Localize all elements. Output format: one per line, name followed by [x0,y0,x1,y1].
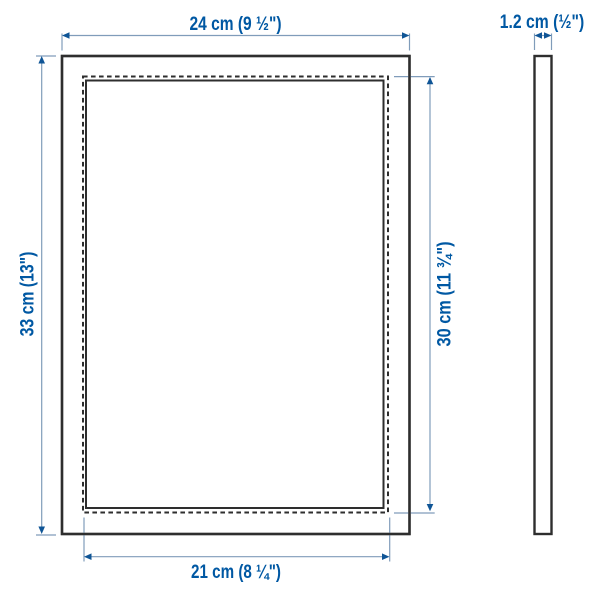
svg-text:30 cm (11 ¾"): 30 cm (11 ¾") [433,241,454,346]
svg-text:21 cm (8 ¼"): 21 cm (8 ¼") [191,560,281,582]
svg-text:33 cm (13"): 33 cm (13") [16,252,38,337]
svg-text:1.2 cm (½"): 1.2 cm (½") [500,11,584,33]
svg-text:24 cm (9 ½"): 24 cm (9 ½") [190,12,282,34]
